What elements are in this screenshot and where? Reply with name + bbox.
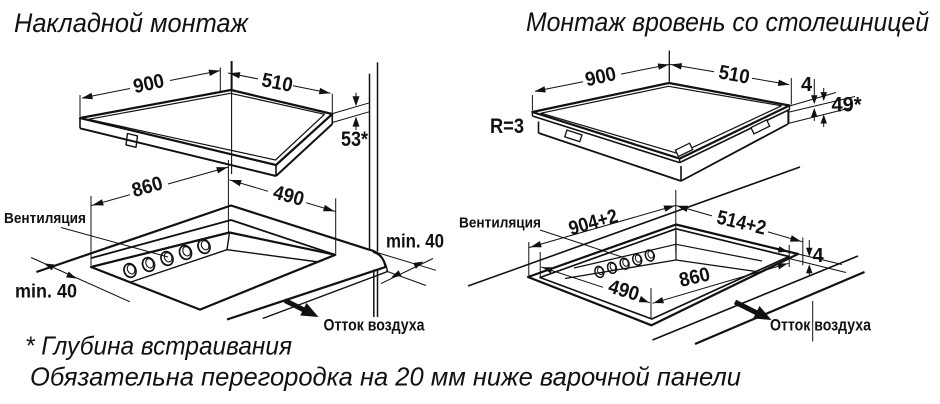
- svg-text:* Глубина встраивания: * Глубина встраивания: [25, 331, 292, 361]
- svg-text:Обязательна перегородка на 20: Обязательна перегородка на 20 мм ниже ва…: [30, 362, 741, 392]
- svg-text:Отток воздуха: Отток воздуха: [770, 317, 872, 335]
- svg-text:900: 900: [131, 70, 166, 98]
- svg-text:53*: 53*: [341, 128, 369, 151]
- svg-text:860: 860: [129, 172, 165, 202]
- svg-text:510: 510: [260, 69, 295, 97]
- svg-text:Вентиляция: Вентиляция: [4, 211, 86, 227]
- svg-text:R=3: R=3: [490, 115, 524, 138]
- svg-text:900: 900: [583, 63, 618, 91]
- svg-text:min. 40: min. 40: [15, 282, 77, 303]
- svg-text:4: 4: [813, 245, 825, 267]
- svg-text:490: 490: [606, 276, 642, 306]
- svg-text:Монтаж вровень со столешницей: Монтаж вровень со столешницей: [526, 7, 929, 37]
- svg-text:Вентиляция: Вентиляция: [459, 216, 541, 232]
- svg-text:4: 4: [801, 74, 813, 96]
- svg-text:49*: 49*: [832, 94, 863, 117]
- svg-text:Отток воздуха: Отток воздуха: [324, 317, 426, 335]
- svg-text:490: 490: [271, 182, 307, 211]
- svg-text:min. 40: min. 40: [386, 232, 444, 253]
- svg-text:510: 510: [717, 61, 751, 88]
- svg-text:Накладной монтаж: Накладной монтаж: [14, 8, 249, 38]
